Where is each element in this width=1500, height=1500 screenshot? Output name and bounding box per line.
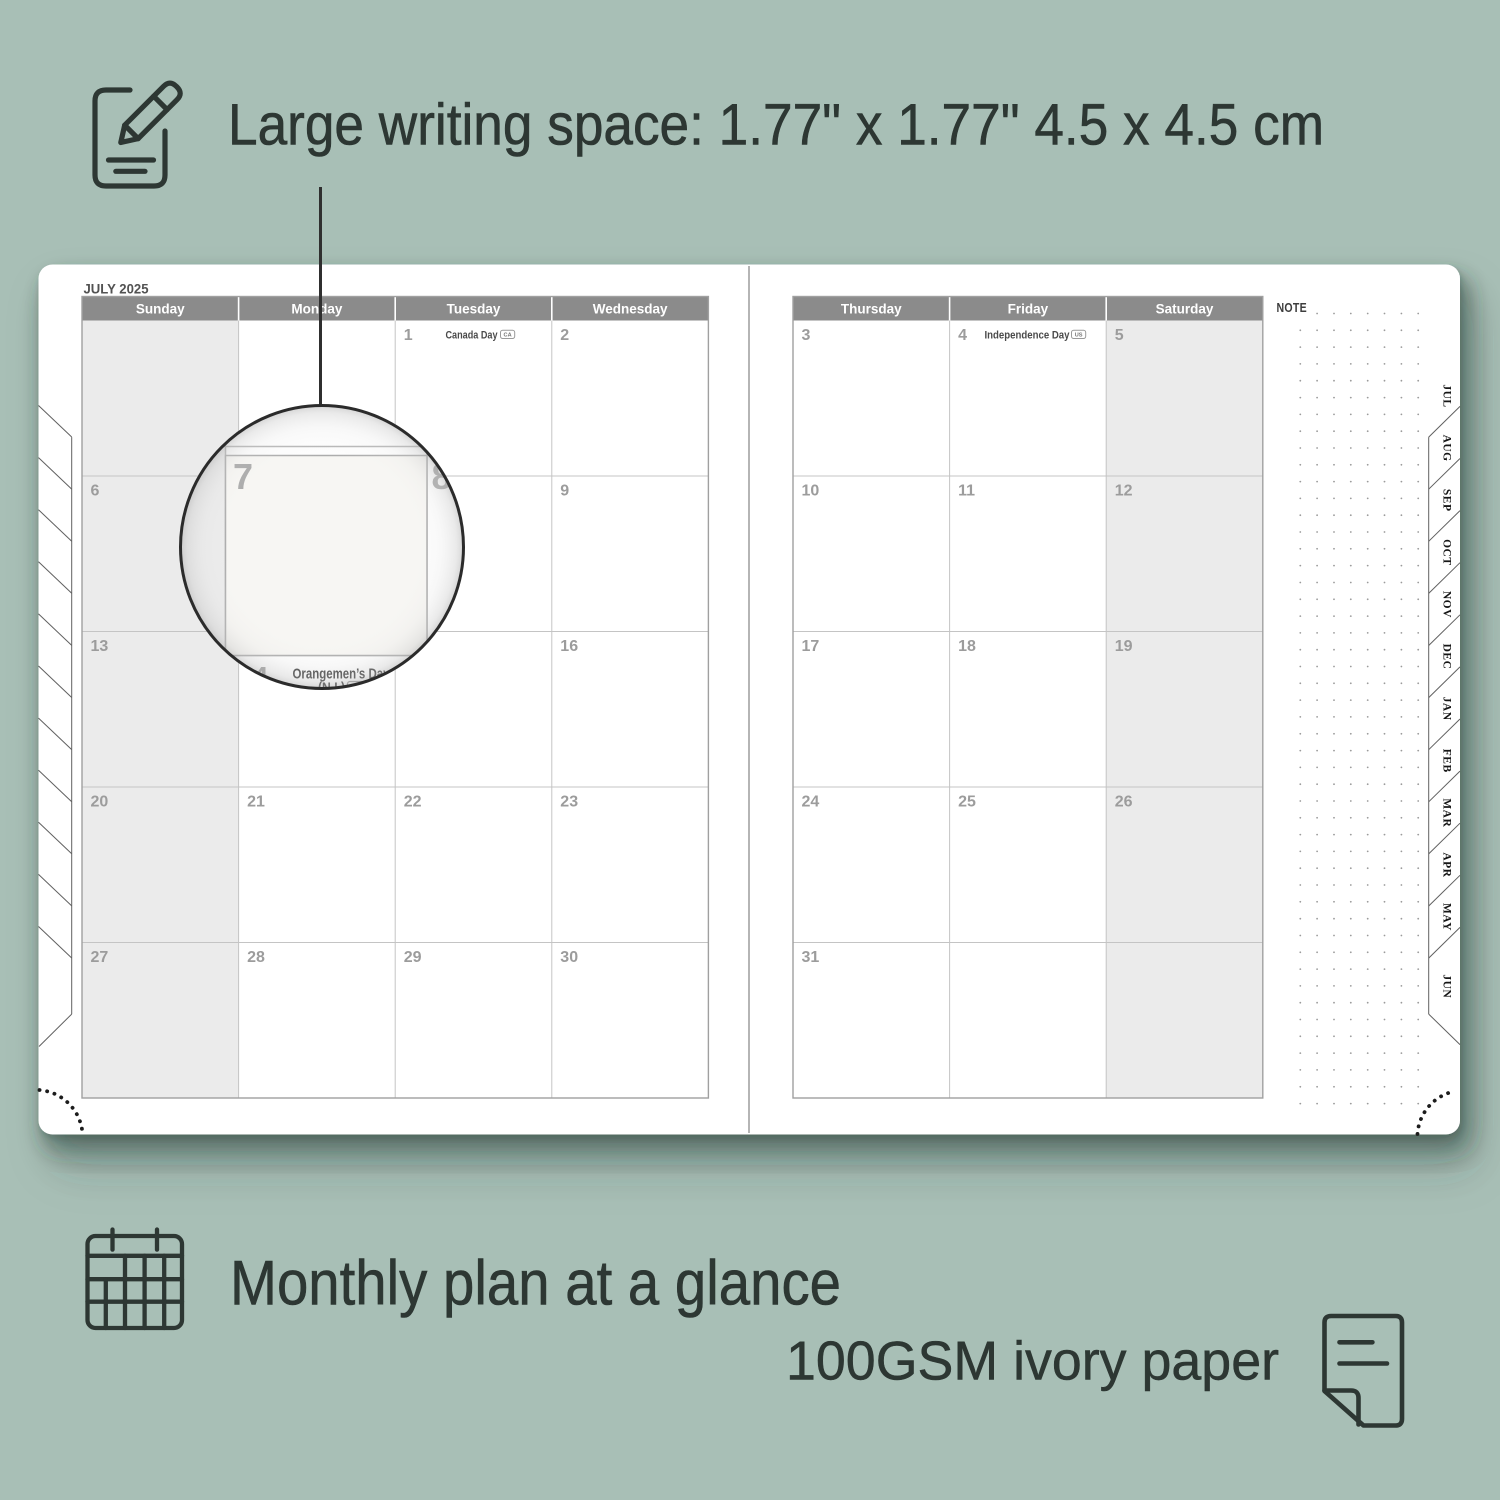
svg-text:11: 11 (958, 483, 975, 500)
svg-text:25: 25 (958, 794, 976, 811)
svg-text:23: 23 (560, 794, 578, 811)
svg-text:JUN: JUN (1441, 974, 1453, 998)
svg-text:JUL: JUL (1441, 384, 1453, 407)
svg-text:27: 27 (91, 949, 109, 966)
svg-text:Monday: Monday (291, 302, 342, 317)
svg-text:4: 4 (958, 327, 967, 344)
svg-text:FEB: FEB (1441, 749, 1453, 773)
svg-text:17: 17 (802, 638, 820, 655)
svg-text:1: 1 (404, 327, 413, 344)
svg-text:18: 18 (958, 638, 976, 655)
svg-text:OCT: OCT (1441, 539, 1453, 565)
svg-text:NOV: NOV (1441, 591, 1453, 618)
svg-text:MAR: MAR (1441, 798, 1453, 827)
svg-text:Sunday: Sunday (136, 302, 185, 317)
svg-text:24: 24 (802, 794, 820, 811)
svg-text:12: 12 (1115, 483, 1133, 500)
svg-text:Thursday: Thursday (841, 302, 902, 317)
svg-text:Independence Day: Independence Day (985, 330, 1071, 342)
svg-text:28: 28 (247, 949, 265, 966)
svg-text:22: 22 (404, 794, 422, 811)
svg-text:6: 6 (91, 483, 100, 500)
svg-text:13: 13 (91, 638, 109, 655)
svg-text:US: US (1075, 333, 1083, 339)
svg-text:Tuesday: Tuesday (447, 302, 501, 317)
svg-text:19: 19 (1115, 638, 1133, 655)
svg-text:CA: CA (504, 333, 512, 339)
svg-text:21: 21 (247, 794, 265, 811)
svg-text:26: 26 (1115, 794, 1133, 811)
svg-text:APR: APR (1441, 852, 1453, 877)
svg-text:Monthly plan at a glance: Monthly plan at a glance (230, 1249, 841, 1319)
svg-text:Friday: Friday (1008, 302, 1049, 317)
svg-text:31: 31 (802, 949, 820, 966)
svg-text:29: 29 (404, 949, 422, 966)
svg-text:Saturday: Saturday (1156, 302, 1214, 317)
svg-text:9: 9 (560, 483, 569, 500)
svg-text:16: 16 (560, 638, 578, 655)
svg-text:30: 30 (560, 949, 578, 966)
svg-text:MAY: MAY (1441, 903, 1453, 931)
svg-text:DEC: DEC (1441, 644, 1453, 670)
svg-text:3: 3 (802, 327, 811, 344)
svg-text:NOTE: NOTE (1277, 301, 1307, 315)
svg-text:JAN: JAN (1441, 697, 1453, 721)
svg-text:AUG: AUG (1441, 435, 1453, 462)
svg-text:5: 5 (1115, 327, 1124, 344)
svg-text:Wednesday: Wednesday (593, 302, 668, 317)
svg-text:2: 2 (560, 327, 569, 344)
svg-text:Large writing space: 1.77" x 1: Large writing space: 1.77" x 1.77" 4.5 x… (228, 92, 1324, 157)
svg-text:20: 20 (91, 794, 109, 811)
svg-text:Canada Day: Canada Day (446, 330, 499, 342)
svg-text:SEP: SEP (1441, 489, 1453, 512)
svg-text:JULY 2025: JULY 2025 (84, 281, 149, 296)
svg-text:10: 10 (802, 483, 820, 500)
svg-text:100GSM ivory paper: 100GSM ivory paper (786, 1330, 1279, 1391)
